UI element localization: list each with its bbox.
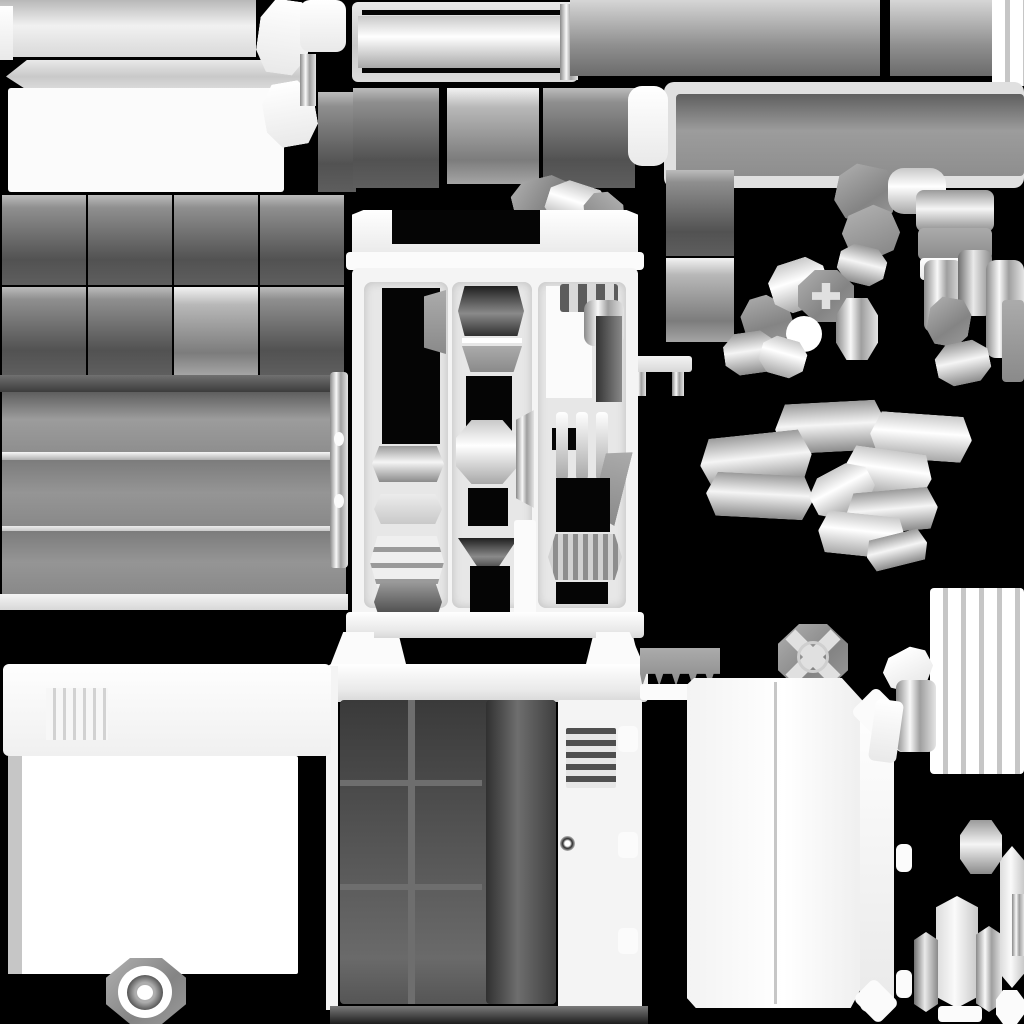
- shelf-bottom-edge: [0, 594, 348, 610]
- metal-scrap: [836, 298, 878, 360]
- pleated-column: [992, 0, 1024, 86]
- cubby: [174, 287, 258, 375]
- crystal-prism: [960, 820, 1002, 874]
- tube-slit-top: [362, 10, 560, 15]
- cubby: [260, 195, 344, 285]
- slot-item-black: [556, 582, 608, 604]
- cubby: [174, 195, 258, 285]
- tl-rail-bar: [6, 60, 304, 90]
- hinge-screw: [334, 432, 344, 446]
- panel-seam: [774, 682, 777, 1004]
- locker-divider-h: [340, 780, 482, 786]
- tube-slit-bottom: [362, 68, 560, 73]
- locker-base: [330, 1006, 648, 1024]
- slot-item-slab: [514, 520, 536, 620]
- slot-item-thread: [548, 534, 622, 580]
- cubby: [260, 287, 344, 375]
- cubby: [447, 88, 539, 184]
- cubby: [88, 287, 172, 375]
- shelf-interior: [676, 94, 1024, 176]
- pleated-panel: [930, 588, 1024, 774]
- console-slits: [46, 688, 108, 740]
- door-hinge: [618, 832, 638, 858]
- cubby: [88, 195, 172, 285]
- slot-item-darkbar: [596, 316, 622, 402]
- cubby: [2, 287, 86, 375]
- slot-item-trap: [462, 346, 522, 372]
- locker-beam: [328, 664, 648, 702]
- metal-strip: [300, 54, 316, 106]
- locker-divider-h: [340, 884, 482, 890]
- crystal-prism: [996, 990, 1024, 1024]
- console-edge: [8, 756, 22, 974]
- page-body: { "meta": { "description": "Grayscale ba…: [0, 0, 1024, 1024]
- locker-corner: [330, 632, 374, 666]
- hex-bar: [705, 471, 815, 521]
- tube-inner: [358, 16, 564, 68]
- cubby: [543, 88, 635, 188]
- x-knob-ring: [797, 641, 829, 673]
- gray-block: [890, 0, 992, 76]
- shelf-hinge-rail: [330, 372, 348, 568]
- metal-pillar: [1002, 300, 1024, 382]
- shelf-interior-mid: [2, 460, 346, 526]
- mini-bench: [630, 356, 692, 372]
- slot-item-hex: [372, 446, 444, 482]
- shelf-interior-top: [2, 392, 346, 453]
- slot-item-black: [468, 488, 508, 526]
- crystal-chip: [938, 1006, 982, 1022]
- tl-top-band: [0, 0, 256, 57]
- cubby-part: [318, 92, 356, 192]
- door-hinge: [896, 844, 912, 872]
- shelf-divider: [2, 452, 346, 460]
- cubby: [666, 258, 734, 342]
- texture-atlas-canvas: [0, 0, 1024, 1024]
- cubby: [2, 195, 86, 285]
- shelf-interior-bottom: [2, 531, 346, 594]
- locker-divider-v: [408, 700, 415, 1004]
- knob-center: [137, 985, 153, 1000]
- door-hinge: [896, 970, 912, 998]
- locker-slab: [486, 700, 556, 1004]
- slot-item-prong: [556, 412, 568, 480]
- door-hinge: [618, 726, 638, 752]
- slot-item-hex: [374, 494, 442, 524]
- cabinet-top-cutout: [392, 210, 540, 244]
- cubby: [353, 88, 439, 188]
- crystal-prism: [914, 932, 938, 1012]
- cubby: [666, 170, 734, 256]
- shelf-top-bar: [0, 375, 348, 392]
- console-body: [8, 756, 298, 974]
- slot-item-prong: [576, 412, 588, 480]
- white-blob: [628, 86, 668, 166]
- bench-leg: [672, 372, 684, 396]
- door-vent: [566, 728, 616, 788]
- white-blob: [300, 0, 346, 52]
- crystal-chip: [1012, 894, 1024, 956]
- tl-white-panel: [8, 88, 284, 192]
- tl-top-band-cap: [0, 6, 13, 60]
- slot-item-crystal: [456, 420, 518, 484]
- gray-block: [570, 0, 880, 76]
- door-hinge: [618, 928, 638, 954]
- metal-pill: [916, 190, 994, 232]
- door-knob: [560, 836, 575, 851]
- slot-item-ribs: [370, 536, 444, 588]
- hinge-screw: [334, 494, 344, 508]
- slot-item-wedge: [424, 290, 446, 354]
- slot-item-highlight: [462, 338, 522, 343]
- slot-item-lid: [458, 286, 524, 336]
- slot-item-black: [556, 478, 610, 532]
- crystal-prism: [936, 896, 978, 1008]
- slot-item-blade: [516, 410, 534, 508]
